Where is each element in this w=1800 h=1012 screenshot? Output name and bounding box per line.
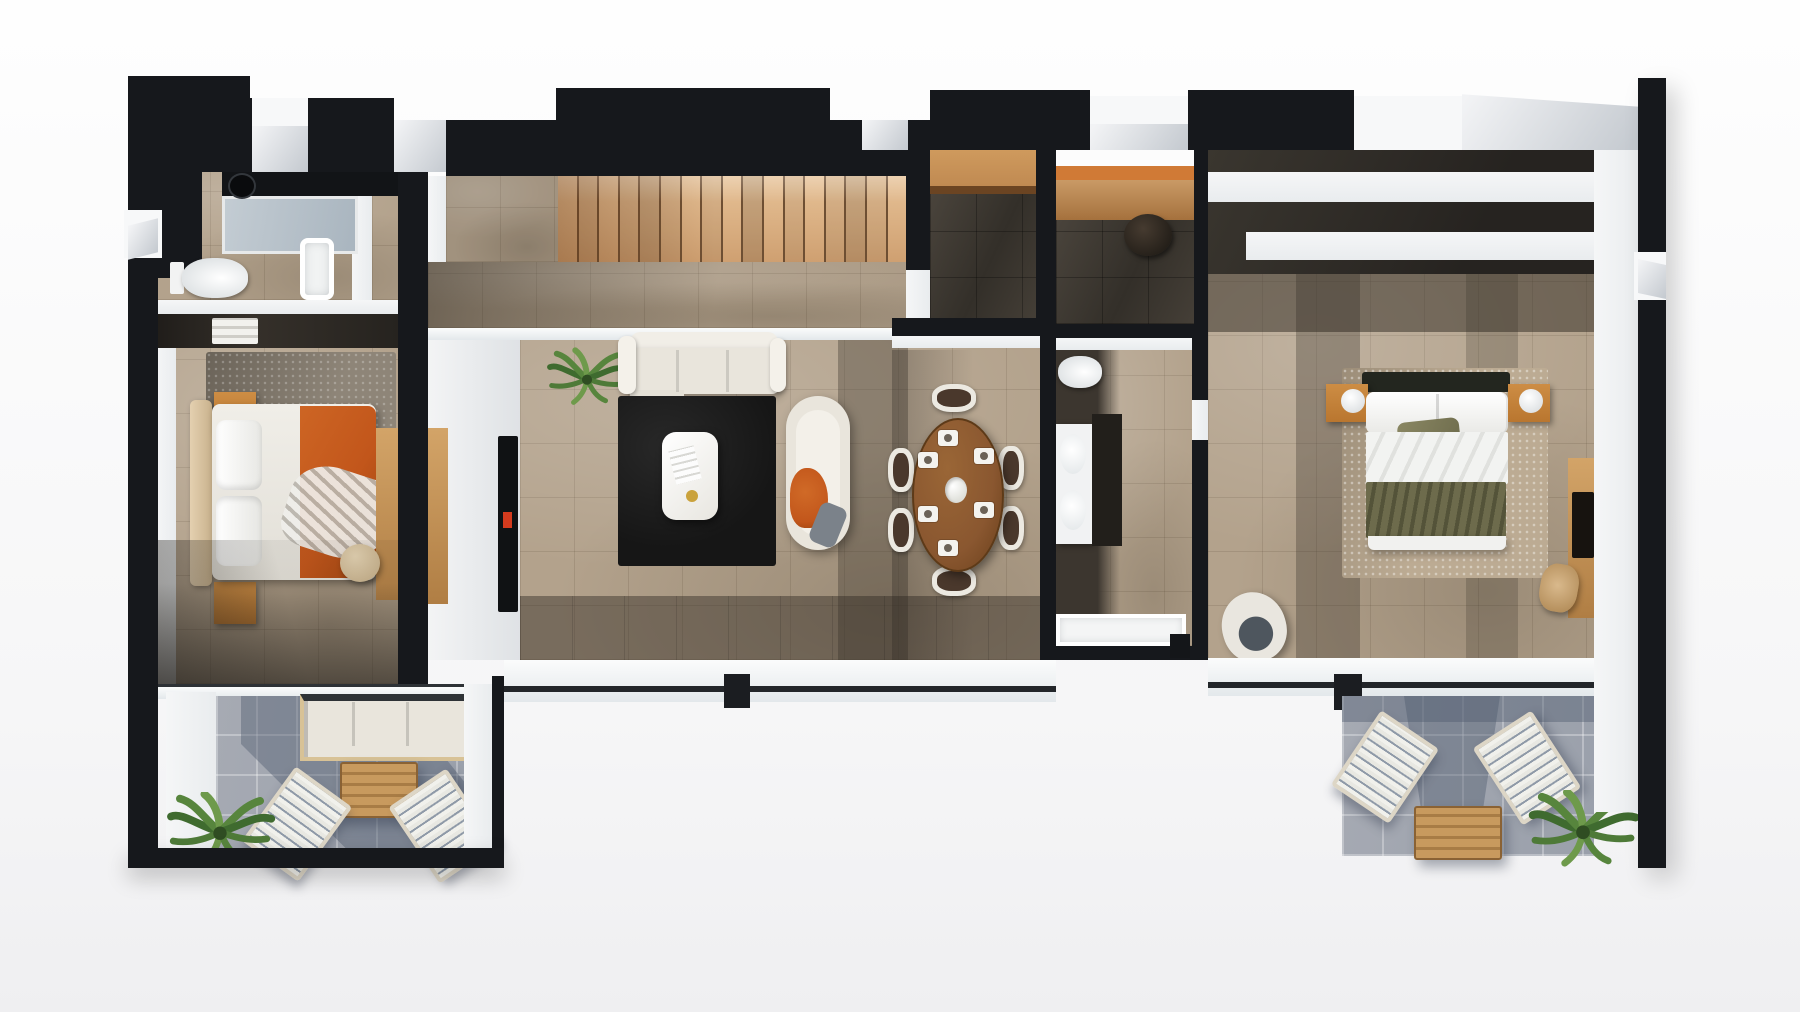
bathroom-2-mirror-partition: [1092, 414, 1122, 546]
corridor-floor: [930, 194, 1036, 324]
master-desk-tv: [1572, 492, 1594, 558]
dining-chair: [932, 384, 976, 412]
corridor-divider-wall: [1036, 150, 1056, 324]
master-shadow-top: [1208, 274, 1594, 332]
upper-hall-shadow: [428, 262, 906, 328]
right-top-window-2: [1354, 96, 1462, 150]
bed-2-lamp-right: [1519, 389, 1543, 413]
right-top-parapet: [1462, 88, 1638, 150]
right-wall-face: [1594, 150, 1640, 812]
dining-centerpiece: [945, 477, 967, 503]
bed-1-pillow: [216, 420, 262, 490]
study-stool: [1124, 214, 1172, 256]
terrace-1-right-wall-face: [464, 684, 492, 856]
bed-2-duvet: [1366, 432, 1508, 484]
master-glass-track: [1208, 682, 1594, 688]
bathroom-2-right-wall: [1192, 324, 1208, 660]
terrace-2-coffee-table: [1414, 806, 1502, 860]
top-left-window-reveal: [252, 126, 308, 172]
left-outer-wall: [128, 76, 158, 856]
study-nook-right-wall: [1194, 150, 1208, 324]
staircase-shading: [558, 176, 906, 262]
master-glass-wall: [1208, 658, 1594, 696]
bed-2-headboard: [1362, 372, 1510, 392]
sofa-cushion-seam: [726, 350, 729, 392]
middle-top-wall-band: [446, 120, 934, 176]
sofa-cushion-seam: [676, 350, 679, 392]
living-room-plant: [545, 342, 629, 414]
sofa-seat: [628, 348, 780, 394]
bathroom-2-wall-face: [1056, 338, 1192, 350]
toilet-bowl: [182, 258, 248, 298]
right-wall-window-reveal: [1638, 259, 1666, 299]
right-outer-wall: [1638, 78, 1666, 868]
place-setting: [918, 452, 938, 468]
dining-top-wall: [892, 318, 1056, 336]
place-setting: [918, 506, 938, 522]
dining-top-wall-face: [892, 336, 1056, 348]
terrace-1-right-wall: [492, 676, 504, 856]
bathroom-2-door-gap: [1192, 400, 1208, 440]
bathroom-2-left-wall: [1040, 324, 1056, 660]
bathroom-2-top-wall: [1040, 324, 1208, 338]
right-top-window-reveal: [1090, 124, 1188, 150]
study-desk-edge: [1056, 166, 1194, 180]
bathroom-2-sink: [1060, 490, 1086, 530]
master-wardrobe-shelf: [1208, 172, 1594, 202]
middle-top-wall-step: [556, 88, 830, 122]
coffee-table-dish: [686, 490, 698, 502]
corridor-counter: [930, 150, 1036, 194]
study-desk: [1056, 180, 1194, 220]
bedroom-1-shadow: [156, 540, 398, 684]
living-glass-track: [504, 686, 1056, 692]
stair-landing: [446, 176, 558, 262]
sofa-cushion-seam: [406, 702, 409, 746]
place-setting: [938, 540, 958, 556]
bathroom-2-toilet: [1058, 356, 1102, 388]
dining-chair: [888, 508, 914, 552]
bedroom-living-divider-wall: [398, 172, 428, 684]
junction-window-reveal: [394, 120, 448, 172]
place-setting: [938, 430, 958, 446]
vessel-sink: [228, 173, 256, 199]
sofa-armrest-left: [618, 336, 636, 394]
dining-chair: [888, 448, 914, 492]
sofa-armrest-right: [770, 338, 786, 392]
bathroom-2-sink: [1060, 434, 1086, 474]
bed-2-olive-blanket: [1366, 482, 1506, 538]
middle-top-window-reveal: [862, 120, 908, 150]
bathtub: [300, 238, 334, 300]
master-wardrobe-shelf: [1246, 232, 1594, 260]
wardrobe-1-front-band: [156, 300, 398, 314]
bed-2-lamp-left: [1341, 389, 1365, 413]
floorplan-canvas: [0, 0, 1800, 1012]
terrace-1-bottom-wall: [128, 848, 504, 868]
right-top-wall-band: [930, 90, 1090, 150]
sofa-cushion-seam: [352, 702, 355, 746]
place-setting: [974, 502, 994, 518]
tv-wall-cabinet: [428, 428, 448, 604]
stair-corridor-wall: [906, 150, 930, 270]
living-glass-wall: [504, 660, 1056, 702]
terrace-1-outdoor-sofa: [300, 694, 474, 761]
wardrobe-1-linens: [212, 318, 258, 344]
place-setting: [974, 448, 994, 464]
bed-2-foot-sheet: [1368, 536, 1506, 550]
tv-accent-light: [503, 512, 512, 528]
bathroom-2-shower-tray: [1056, 614, 1186, 646]
bathroom-2-shower-fixture: [1170, 634, 1190, 658]
living-door-jamb: [724, 674, 750, 708]
wardrobe-1-interior: [156, 314, 398, 348]
shower-tray: [222, 196, 358, 254]
top-left-window: [252, 98, 308, 126]
right-top-wall-band-2: [1188, 90, 1354, 150]
